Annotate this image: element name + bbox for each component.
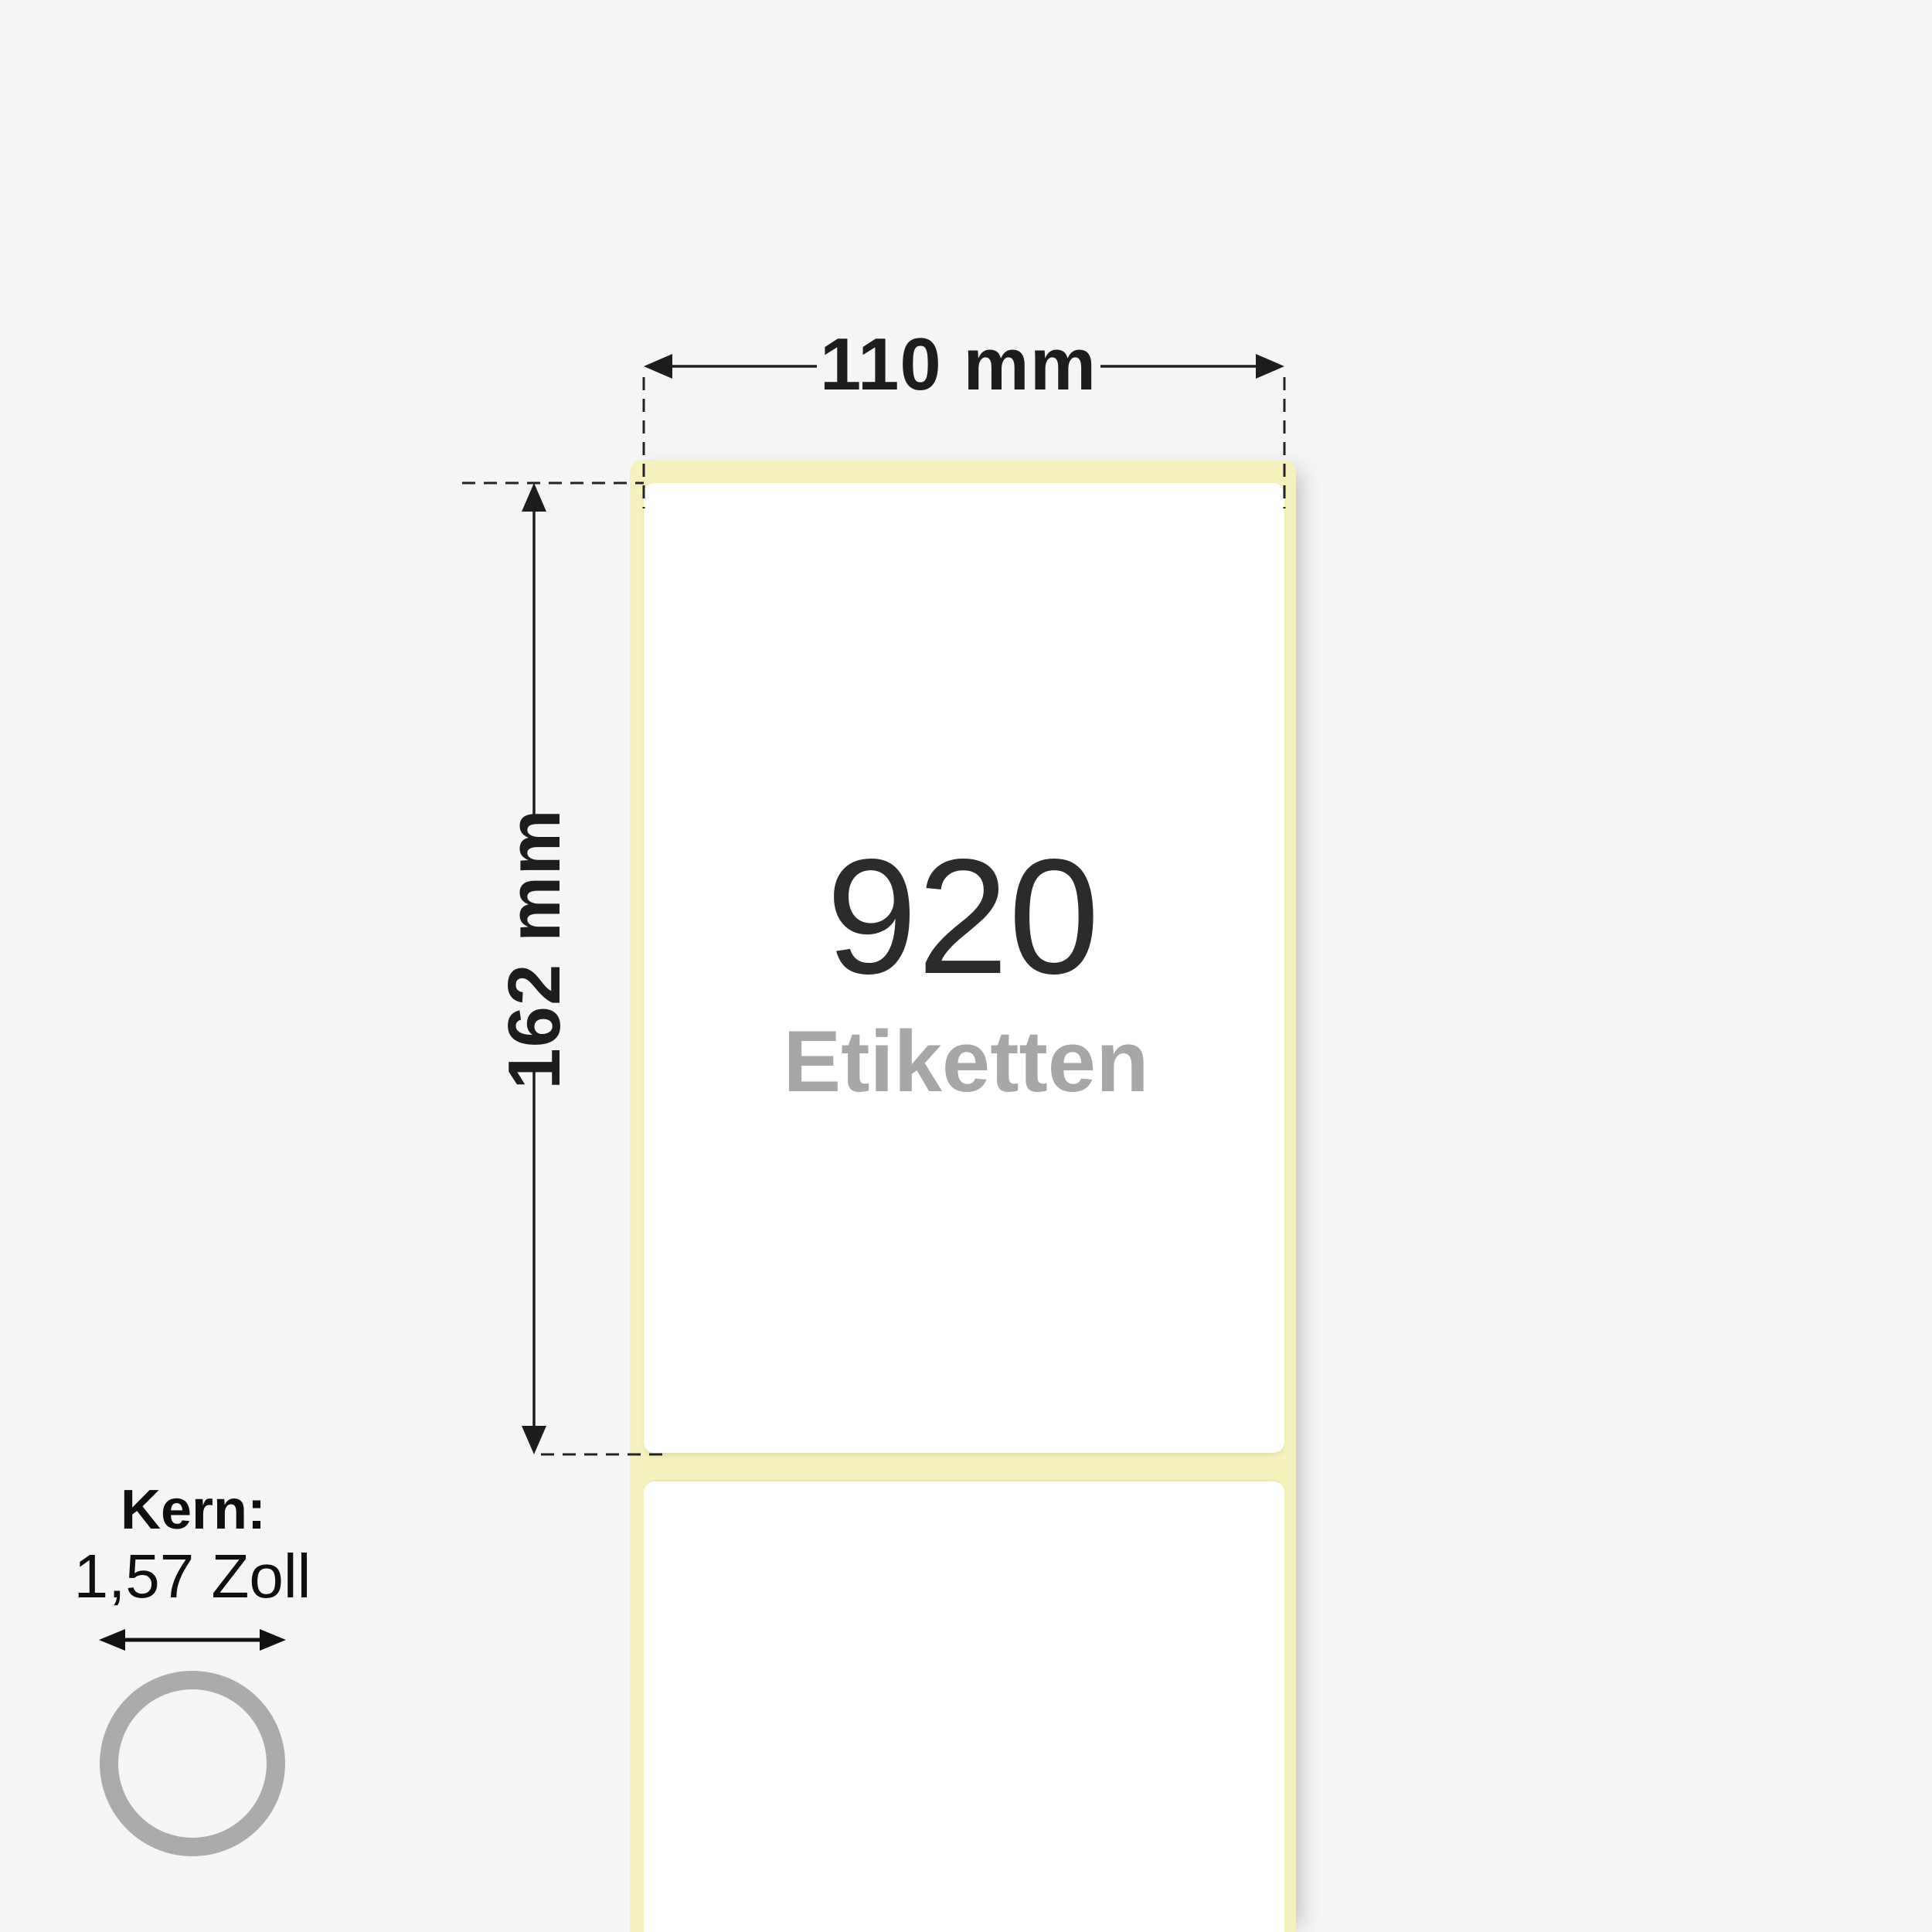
width-dimension-label: 110 mm — [820, 328, 1097, 402]
label-roll-diagram: 110 mm 162 mm 920 Etiketten Kern: 1,57 Z… — [0, 0, 1932, 1932]
label-count-unit: Etiketten — [784, 1019, 1149, 1105]
arrow-right-icon — [1256, 354, 1284, 379]
core-diameter-arrow — [99, 1629, 286, 1651]
arrow-left-icon — [99, 1629, 125, 1651]
core-ring-icon — [109, 1680, 276, 1847]
label-count: 920 — [826, 835, 1100, 998]
core-size: 1,57 Zoll — [74, 1546, 311, 1607]
arrow-left-icon — [644, 354, 672, 379]
height-dimension-label: 162 mm — [498, 808, 572, 1090]
label-2 — [644, 1481, 1284, 1932]
arrow-up-icon — [522, 483, 546, 512]
core-title: Kern: — [121, 1482, 266, 1538]
arrow-right-icon — [260, 1629, 286, 1651]
arrow-down-icon — [522, 1426, 546, 1454]
